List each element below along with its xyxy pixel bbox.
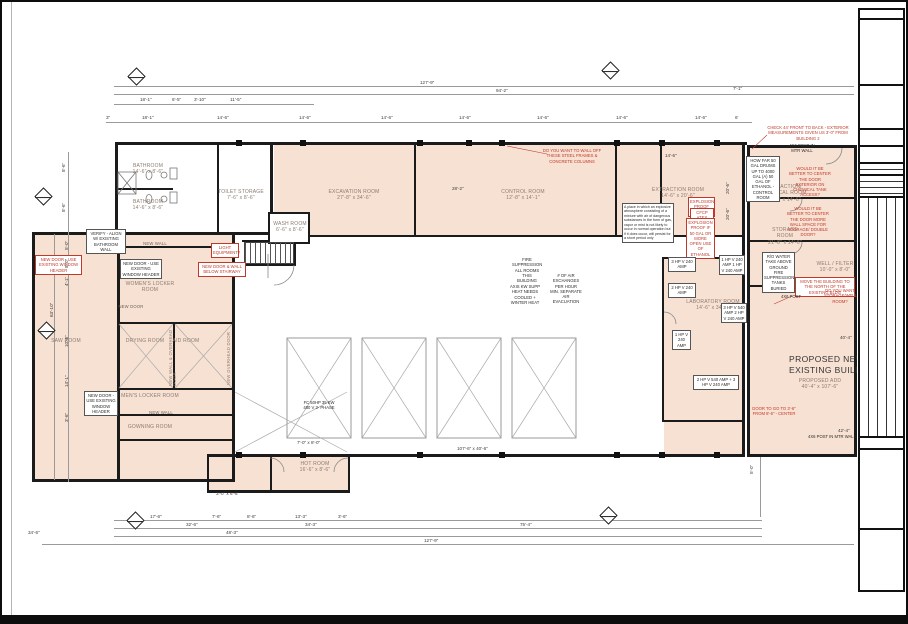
note-box: 3 HP V 240 AMP (668, 257, 696, 272)
room-name: WOMEN'S LOCKER ROOM (120, 281, 180, 294)
reviewer-note: WOULD IT BE BETTER TO CENTER THE DOOR EX… (788, 166, 832, 198)
room-dims: 27'-8" x 34'-6" (322, 195, 386, 201)
annotation-text: 4X6 POST (778, 294, 804, 299)
note-box: 1 HP V 240 AMP 1 HP V 240 AMP (719, 255, 745, 275)
title-block-cell (858, 84, 905, 130)
reviewer-note: CHECK 44' FRONT TO BACK - EXTERIOR MEASU… (764, 125, 852, 141)
room-dims: 12'-8" x 14'-1" (496, 195, 550, 201)
dimension-label: 5'-0" (65, 241, 70, 250)
drawing-sheet: BATHROOM 14'-6" x 8'-6" BATHROOM 14'-6" … (0, 0, 908, 624)
dimension-label: 8'-6" (62, 163, 67, 172)
vertical-label: NEW OVERHEAD DOOR (227, 329, 231, 385)
note-box: 1 HP V 240 AMP (672, 330, 691, 350)
caption-line1: PROPOSED NEW B (789, 354, 857, 365)
room-label: PROPOSED ADD 40'-4" x 107'-6" (798, 378, 842, 391)
dimension-label: 18'-1" (140, 98, 152, 103)
dimension-label: 13'-3" (295, 515, 307, 520)
dimension-label: 7'-6" (212, 515, 221, 520)
room-label: HOT ROOM 16'-6" x 8'-6" (286, 461, 344, 474)
dimension-label: 28'-2" (452, 187, 464, 192)
room-label: WASH ROOM 6'-6" x 8'-6" (268, 221, 312, 234)
dimension-label: 14'-1" (65, 375, 70, 387)
dimension-label: 3'-6" (338, 515, 347, 520)
note-box: 3 HP V 540 AMP 2 HP V 240 AMP (721, 303, 747, 323)
proposed-building-caption: PROPOSED NEW B EXISTING BUILDINGS (789, 354, 857, 376)
dimension-label: 40'-4" (840, 336, 852, 341)
reviewer-note: WOULD IT BE BETTER TO CENTER THE DOOR MO… (786, 206, 830, 238)
note-box: HOW FAR 50 GAL DRUMS UP TO 4000 GAL (A) … (746, 156, 780, 202)
dimension-label: 48'-3" (226, 531, 238, 536)
room-dims: 16'-6" x 8'-6" (286, 467, 344, 473)
room-dims: 40'-4" x 107'-6" (798, 384, 842, 390)
title-block-cell (858, 528, 905, 592)
dimension-label: 14'-6" (695, 116, 707, 121)
room-dims: 21'-8" x 14'-6" (764, 240, 806, 246)
room-label: WELL / FILTER 10'-0" x 8'-0" (816, 261, 854, 274)
room-name: GOWNING ROOM (120, 424, 180, 430)
caption-line2: EXISTING BUILDINGS (789, 365, 857, 376)
room-label: TOILET STORAGE 7'-6" x 8'-6" (213, 189, 269, 202)
note-box: VERIFY - ALIGN W/ EXISTING BATHROOM WALL (86, 229, 126, 254)
room-label: CONTROL ROOM 12'-8" x 14'-1" (496, 189, 550, 202)
dimension-label: 8'-0" (65, 259, 70, 268)
dimension-label: 8'-6" (62, 203, 67, 212)
dimension-label: 14'-6" (616, 116, 628, 121)
dimension-label: 14'-6" (299, 116, 311, 121)
bottom-border-band (2, 615, 906, 622)
annotation-text: FIRE SUPPRESSION ALL ROOMS THIS BUILDING (512, 257, 542, 283)
room-dims: 10'-0" x 8'-0" (816, 267, 854, 273)
room-dims: 14'-6" x 8'-6" (118, 205, 178, 211)
dimension-label: 3'-0" x 6'-8" (216, 492, 239, 497)
dimension-label: 18'-1" (142, 116, 154, 121)
title-block-signature-area (858, 196, 905, 438)
dimension-label: 94'-2" (496, 89, 508, 94)
dimension-label: 3" (106, 116, 110, 121)
note-box: 2 HP V 540 AMP + 3 HP V 240 AMP (693, 375, 739, 390)
annotation-text: 4X6 POST IN MTR WALL (788, 143, 816, 154)
dimension-label: 4'-1" (65, 277, 70, 286)
dimension-label: 11'-5" (230, 98, 241, 103)
dimension-label: 14'-6" (665, 154, 677, 159)
room-label: NEW DOOR (116, 304, 146, 309)
annotation-text: AXIS KW SUPP HEAT NEEDS COOLED + WINTER … (509, 284, 541, 305)
room-label: GOWNING ROOM (120, 424, 180, 430)
room-name: NEW DOOR (116, 304, 146, 309)
dimension-label: 75'-4" (520, 523, 532, 528)
room-label: MEN'S LOCKER ROOM (120, 393, 180, 399)
reviewer-note: DO YOU WANT TO WALL OFF THESE STEEL FRAM… (540, 148, 604, 164)
room-name: NEW WALL (146, 410, 176, 415)
dimension-label: 20'-6" (726, 182, 731, 194)
annotation-text: # OF AIR EXCHANGES PER HOUR MIN. SEPARAT… (550, 273, 582, 305)
dimension-label: 34'-3" (305, 523, 317, 528)
dimension-label: 7'-1" (733, 87, 742, 92)
reviewer-note: DO YOU WANT STORAGE/WELL ROOM? (824, 288, 856, 304)
dimension-label: 17'-6" (150, 515, 162, 520)
room-dims: 6'-6" x 8'-6" (268, 227, 312, 233)
dimension-label: 10'-6" (65, 335, 70, 347)
note-box: 2 HP V 240 AMP (668, 283, 696, 298)
room-name: NEW WALL (140, 241, 170, 246)
room-dims: 14'-6" x 8'-6" (118, 169, 178, 175)
room-label: NEW WALL (140, 241, 170, 246)
room-name: MEN'S LOCKER ROOM (120, 393, 180, 399)
dimension-label: 32'-6" (186, 523, 198, 528)
note-box: NEW DOOR - USE EXISTING WINDOW HEADER (120, 259, 162, 279)
reviewer-note: LIGHT EQUIPMENT? (211, 243, 239, 258)
dimension-label: 42'-4" (838, 429, 850, 434)
dimension-label: 127'-9" (424, 539, 438, 544)
dimension-label: 6'-5" (172, 98, 181, 103)
dimension-label: 34'-6" (28, 531, 40, 536)
dimension-label: 7'-0" x 8'-0" (297, 441, 320, 446)
dimension-label: 14'-6" (381, 116, 393, 121)
dimension-label: 107'-6" x 40'-6" (457, 447, 488, 452)
dimension-label: 20'-6" (726, 208, 731, 220)
dimension-label: 3'-6" (65, 413, 70, 422)
room-label: BATHROOM 14'-6" x 8'-6" (118, 163, 178, 176)
annotation-text: 4X6 POST IN MTR WALL (808, 434, 856, 439)
title-block-strip (858, 10, 905, 592)
room-label: WOMEN'S LOCKER ROOM (120, 281, 180, 294)
room-dims: 7'-6" x 8'-6" (213, 195, 269, 201)
reviewer-note: DOOR TO GO TO 3'-6" FROM 8'-6" - CENTER (750, 406, 798, 417)
reviewer-note: NEW DOOR - USE EXISTING WINDOW HEADER (35, 255, 82, 275)
reviewer-note: NEW DOOR & WALL BELOW STAIRWAY (198, 262, 246, 277)
dimension-label: 5'-0" (750, 465, 755, 474)
reviewer-note: EXPLOSION PROOF IF 50 GAL OR MORE OPEN U… (686, 218, 715, 259)
dimension-label: 14'-6" (459, 116, 471, 121)
dimension-label: 127'-9" (420, 81, 434, 86)
dimension-label: 8'-6" (247, 515, 256, 520)
vertical-label: NEW WALL & OVERHEAD DOOR (169, 326, 177, 386)
room-label: BATHROOM 14'-6" x 8'-6" (118, 199, 178, 212)
annotation-text: FC 50HP 35 KW 480 V 3- PHASE (302, 400, 336, 411)
dimension-label: 3'-10" (194, 98, 206, 103)
dimension-label: 63'-10" (50, 303, 55, 317)
room-label: NEW WALL (146, 410, 176, 415)
title-block-cell (858, 448, 905, 530)
dimension-label: 6' (735, 116, 738, 121)
note-box: NEW DOOR - USE EXISTING WINDOW HEADER (84, 391, 118, 416)
note-box: R/O WATER TAKE ABOVE GROUND FIRE SUPPRES… (762, 252, 795, 293)
annotation-lines (2, 2, 908, 624)
room-label: EXCAVATION ROOM 27'-8" x 34'-6" (322, 189, 386, 202)
dimension-label: 14'-6" (537, 116, 549, 121)
title-block-revision-rows (858, 174, 905, 198)
dimension-label: 14'-6" (217, 116, 229, 121)
title-block-cell (858, 18, 905, 86)
note-box: A place in which an explosive atmosphere… (622, 203, 674, 243)
